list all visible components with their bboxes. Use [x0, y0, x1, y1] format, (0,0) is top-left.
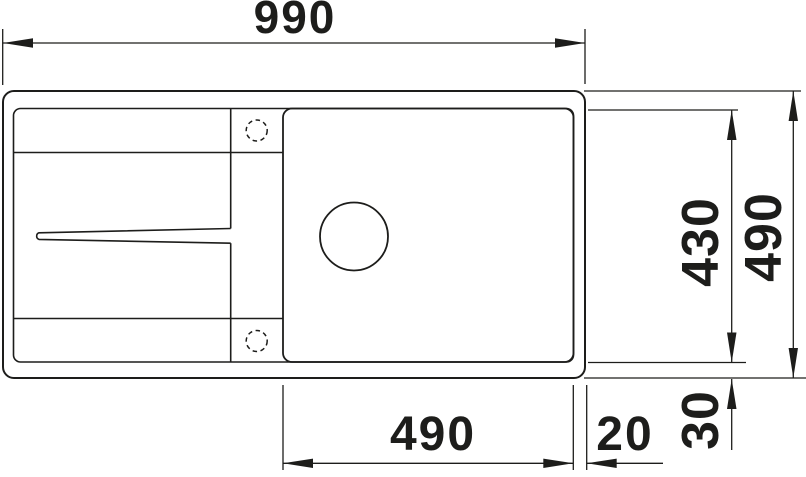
dim-label-overall-length: 990 [254, 0, 337, 40]
arrow-up-icon [789, 91, 798, 121]
arrow-left-icon [3, 38, 33, 48]
arrow-up-icon [727, 110, 737, 140]
rim-inner-contour [14, 109, 574, 363]
dim-label-bowl-length: 490 [390, 411, 476, 459]
faucet-hole-bottom [246, 331, 267, 352]
sink-outline [3, 91, 585, 378]
main-bowl [283, 109, 574, 363]
faucet-hole-top [246, 120, 267, 141]
arrow-right-icon [555, 38, 585, 48]
arrow-left-icon [283, 459, 313, 468]
dim-label-rim-bottom: 30 [675, 390, 727, 450]
arrow-down-icon [727, 333, 737, 363]
arrow-down-icon [789, 348, 798, 378]
dim-label-rim-right: 20 [596, 411, 653, 459]
arrow-right-icon [543, 459, 573, 468]
drain-groove [37, 229, 231, 244]
dim-label-bowl-depth: 430 [675, 197, 727, 287]
dim-label-overall-depth: 490 [738, 192, 790, 282]
drain-hole [320, 203, 388, 271]
sink-technical-drawing: 990 430 490 490 20 30 [0, 0, 806, 477]
